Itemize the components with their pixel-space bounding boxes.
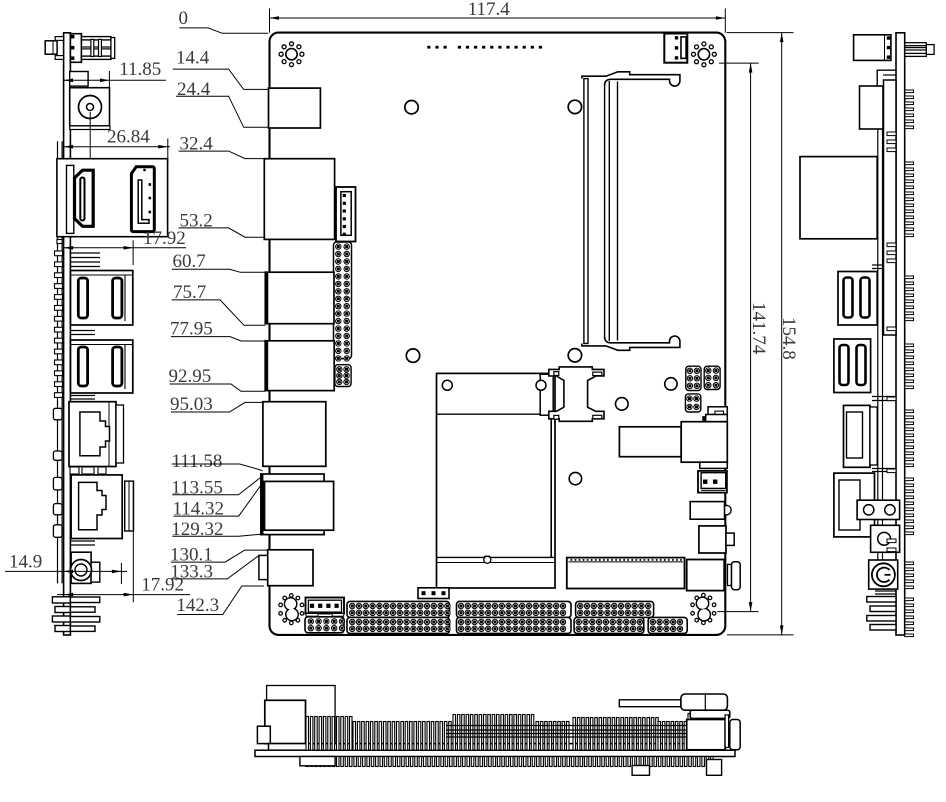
svg-text:24.4: 24.4 [177,79,211,100]
svg-text:117.4: 117.4 [468,0,511,20]
svg-text:129.32: 129.32 [171,519,223,540]
svg-text:113.55: 113.55 [171,478,223,499]
svg-text:14.4: 14.4 [176,48,210,69]
svg-text:11.85: 11.85 [119,59,161,80]
svg-text:14.9: 14.9 [9,551,42,572]
svg-text:141.74: 141.74 [748,302,769,355]
svg-text:0: 0 [179,8,189,29]
svg-text:142.3: 142.3 [176,595,219,616]
svg-text:154.8: 154.8 [778,317,799,360]
svg-text:26.84: 26.84 [107,127,150,148]
svg-text:111.58: 111.58 [172,451,223,472]
